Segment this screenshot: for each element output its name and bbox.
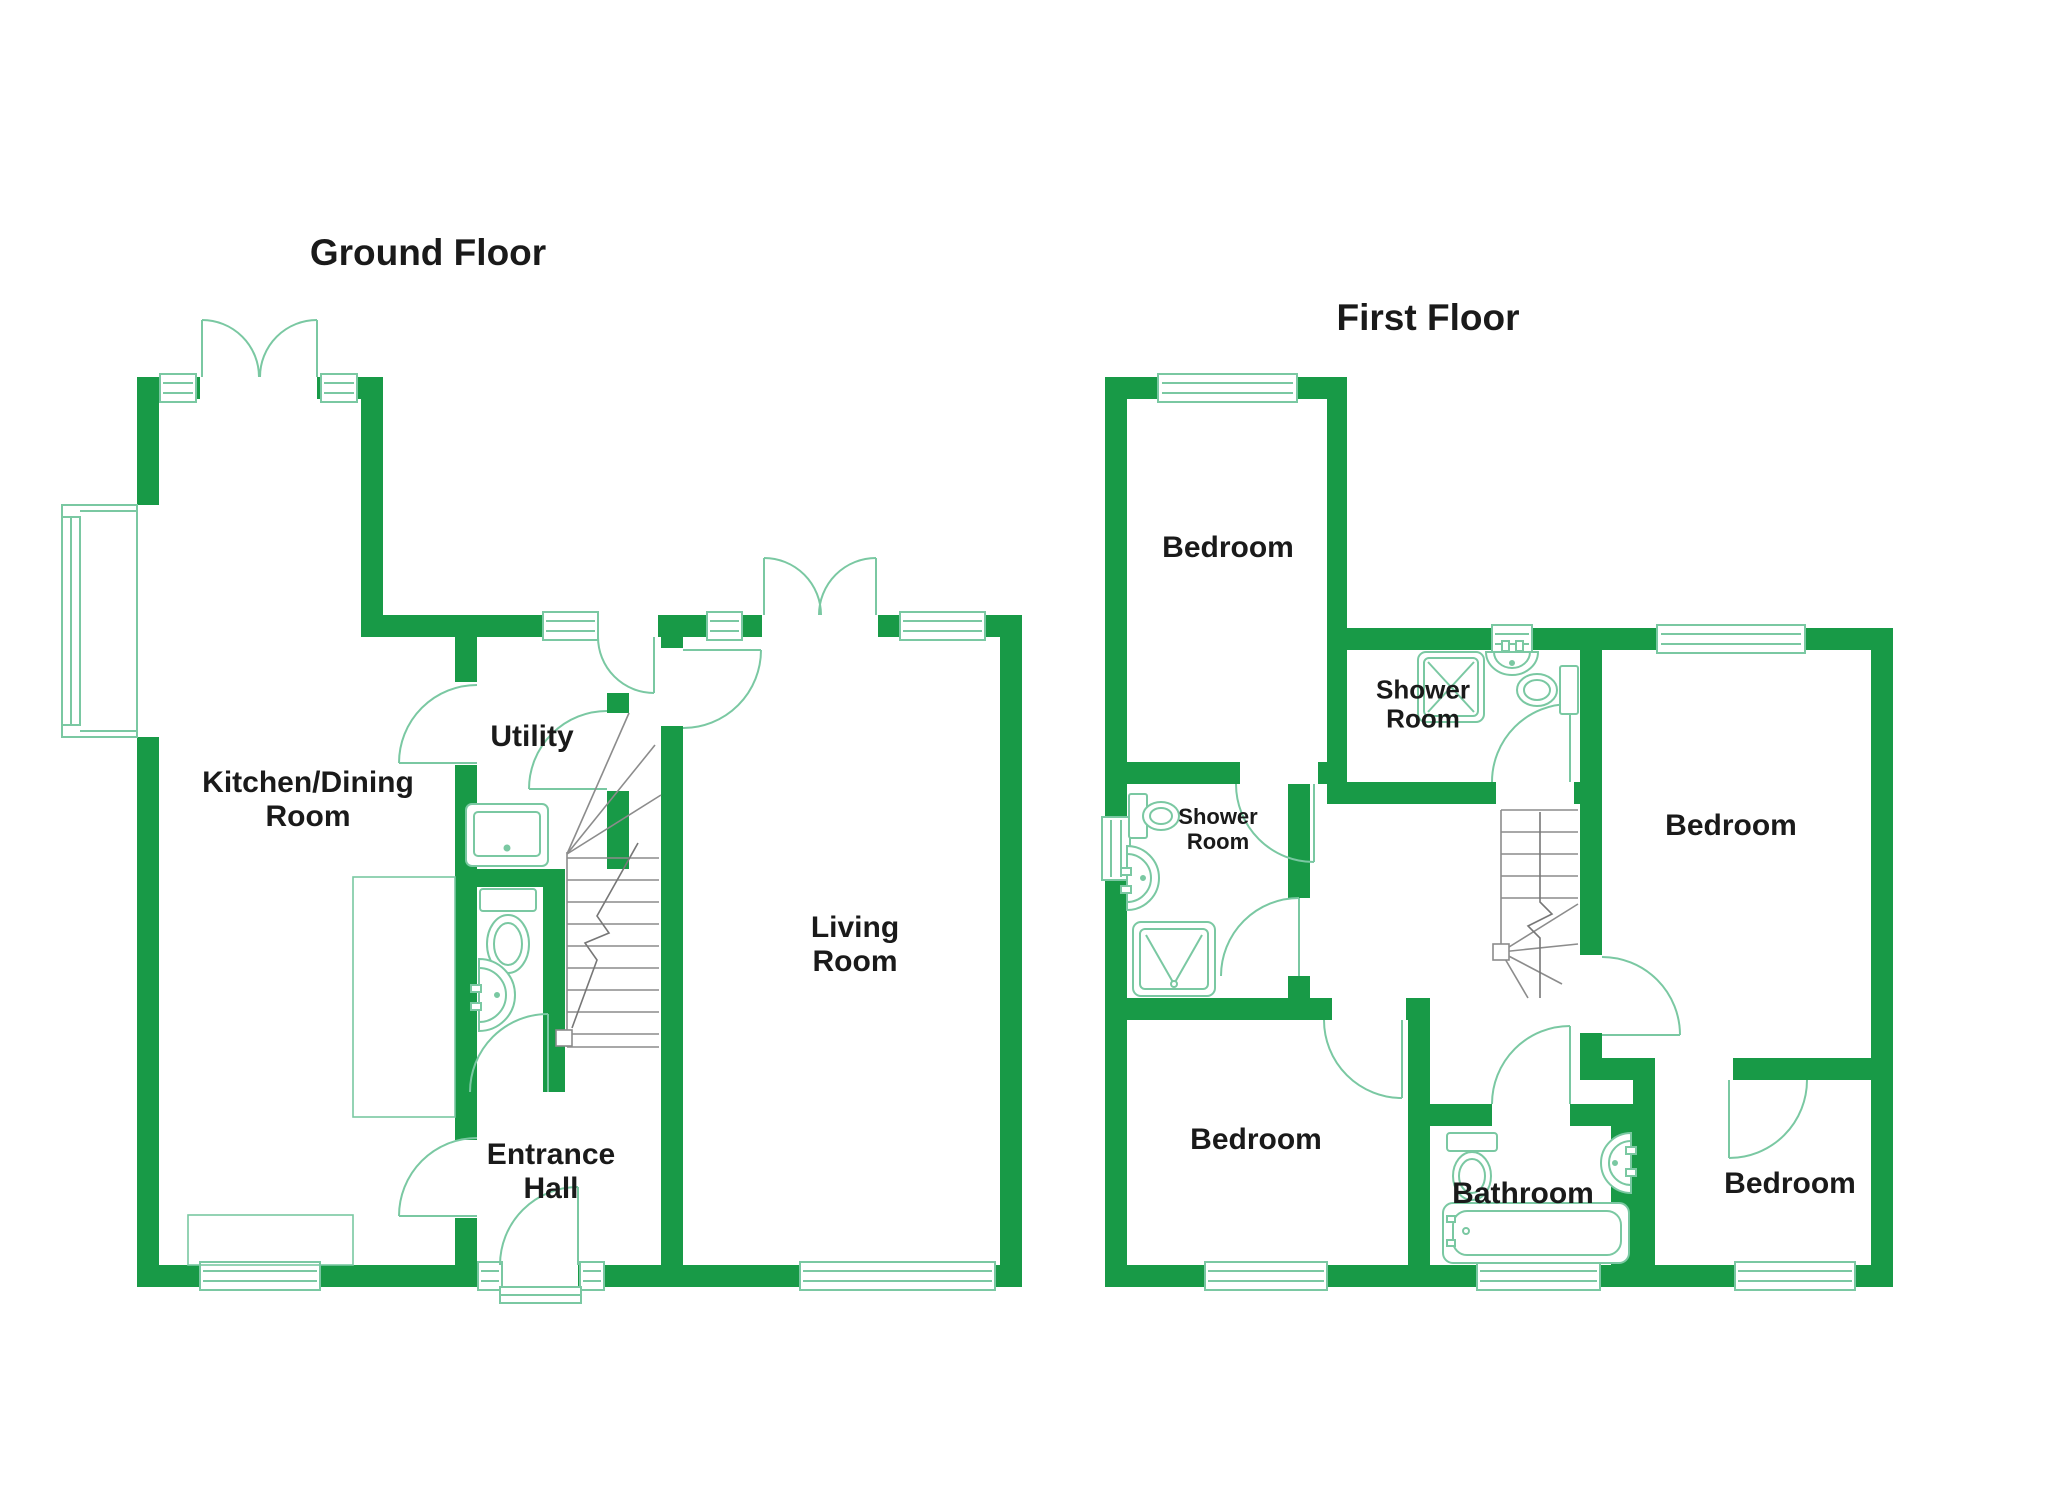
window: [543, 612, 598, 640]
floorplan-page: Ground Floor First Floor Kitchen/Dining …: [0, 0, 2048, 1489]
shower-tray: [1133, 922, 1215, 996]
room-label-shower-room-top: Shower Room: [1376, 676, 1470, 735]
room-label-bedroom-top-left: Bedroom: [1162, 531, 1294, 565]
window: [1492, 625, 1532, 653]
window: [478, 1262, 502, 1290]
bathtub: [1443, 1203, 1629, 1263]
door: [683, 650, 761, 728]
room-label-shower-room-left: Shower Room: [1178, 805, 1257, 855]
window: [1657, 625, 1805, 653]
window: [1158, 374, 1297, 402]
door: [1602, 957, 1680, 1035]
window: [1477, 1262, 1600, 1290]
sink: [466, 804, 548, 866]
room-label-kitchen-dining: Kitchen/Dining Room: [202, 766, 414, 834]
door: [1729, 1080, 1807, 1158]
bay-window: [62, 505, 137, 737]
door: [1324, 1020, 1402, 1098]
first-floor-title: First Floor: [1337, 297, 1520, 339]
french-doors: [202, 320, 317, 377]
french-doors: [764, 558, 876, 615]
floorplan-drawing: [0, 0, 2048, 1489]
basin: [1121, 846, 1159, 910]
room-label-bedroom-bottom-right: Bedroom: [1724, 1167, 1856, 1201]
window: [200, 1262, 320, 1290]
toilet: [1129, 794, 1179, 838]
window: [1205, 1262, 1327, 1290]
window: [800, 1262, 995, 1290]
door: [1221, 898, 1299, 976]
room-label-utility: Utility: [490, 720, 573, 754]
room-label-entrance-hall: Entrance Hall: [487, 1138, 615, 1206]
room-label-living-room: Living Room: [811, 911, 899, 979]
room-label-bathroom: Bathroom: [1452, 1177, 1594, 1211]
window: [160, 374, 196, 402]
basin: [1601, 1133, 1636, 1193]
ground-floor-title: Ground Floor: [310, 232, 546, 274]
staircase: [556, 713, 661, 1047]
kitchen-counter: [188, 877, 455, 1265]
window: [580, 1262, 604, 1290]
staircase: [1493, 810, 1578, 998]
room-label-bedroom-right: Bedroom: [1665, 809, 1797, 843]
door: [1492, 704, 1570, 782]
window: [321, 374, 357, 402]
window: [1735, 1262, 1855, 1290]
door: [598, 637, 654, 693]
door: [1492, 1026, 1570, 1104]
room-label-bedroom-bottom-left: Bedroom: [1190, 1123, 1322, 1157]
window: [707, 612, 742, 640]
window: [900, 612, 985, 640]
